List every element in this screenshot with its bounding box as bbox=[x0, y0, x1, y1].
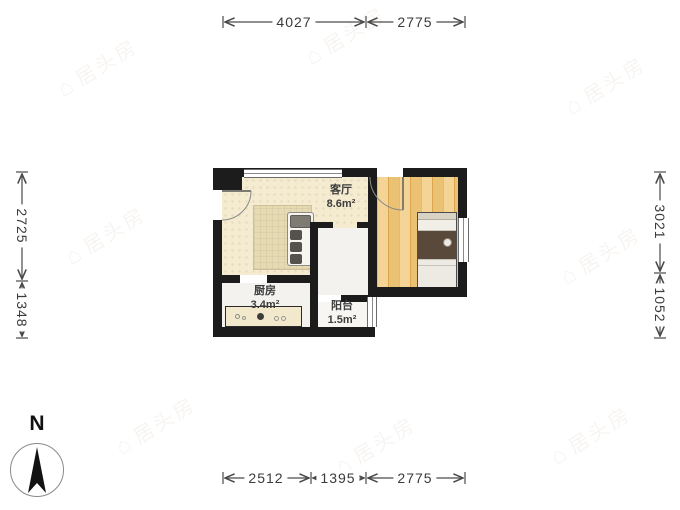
dimension-label-left-upper: 2725 bbox=[14, 204, 30, 247]
floor-plan: 客厅 8.6m² 厨房 3.4m² 阳台 1.5m² bbox=[213, 168, 467, 337]
dimension-label-bottom-mid: 1395 bbox=[316, 470, 359, 486]
dimension-label-right-lower: 1052 bbox=[652, 283, 668, 326]
entry-door-swing-icon bbox=[222, 191, 251, 220]
room-name: 厨房 bbox=[237, 284, 293, 298]
room-area: 1.5m² bbox=[316, 313, 368, 327]
dimension-label-right-upper: 3021 bbox=[652, 200, 668, 243]
room-label-balcony: 阳台 1.5m² bbox=[316, 299, 368, 327]
bedroom-door-swing-icon bbox=[370, 177, 403, 210]
room-name: 客厅 bbox=[313, 183, 369, 197]
page-root: { "plan": { "rooms": [ { "name": "客厅", "… bbox=[0, 0, 680, 510]
dimension-label-top-left: 4027 bbox=[272, 14, 315, 30]
north-arrow-icon bbox=[10, 443, 64, 497]
dimension-label-bottom-right: 2775 bbox=[393, 470, 436, 486]
north-label: N bbox=[23, 412, 51, 436]
dimension-label-bottom-left: 2512 bbox=[244, 470, 287, 486]
room-label-kitchen: 厨房 3.4m² bbox=[237, 284, 293, 312]
room-area: 3.4m² bbox=[237, 298, 293, 312]
room-label-living: 客厅 8.6m² bbox=[313, 183, 369, 211]
room-name: 阳台 bbox=[316, 299, 368, 313]
dimension-label-left-lower: 1348 bbox=[14, 288, 30, 331]
room-area: 8.6m² bbox=[313, 197, 369, 211]
dimension-label-top-right: 2775 bbox=[393, 14, 436, 30]
